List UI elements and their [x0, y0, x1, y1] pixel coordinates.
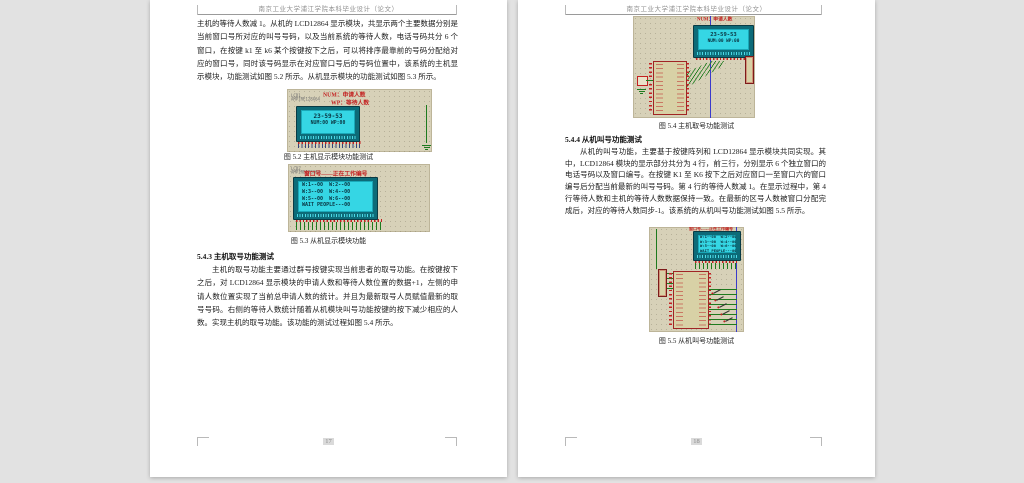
- figure-5-2-image[interactable]: LCD1AMPIRE128X64 NUM：申请人数 WP：等待人数 23-59-…: [287, 89, 432, 152]
- lcd-line-4: WAIT PEOPLE---00: [700, 249, 736, 253]
- wire-vertical: [426, 105, 427, 143]
- lcd-screen: W:1--00 W:2--00 W:3--00 W:4--00 W:5--00 …: [298, 181, 373, 212]
- figure-5-5-image[interactable]: 窗口号——正在工作编号 W:1--00 W:2--00 W:3--00 W:4-…: [649, 227, 744, 332]
- margin-crop-mark: [197, 5, 198, 15]
- ground-symbol: [422, 144, 431, 150]
- chip-pins-left: [669, 273, 672, 325]
- annotation-num: NUM：申请人数: [323, 92, 366, 98]
- header-rule: [197, 14, 457, 15]
- lcd-line-1: W:1--00 W:2--00: [302, 182, 373, 189]
- lcd-line-1: 23-59-53: [698, 31, 749, 39]
- lcd-screen: 23-59-53 NUM:00 WP:00: [698, 29, 749, 50]
- page-header-text: 南京工业大学浦江学院本科毕业设计（论文）: [150, 3, 507, 13]
- document-page-right[interactable]: 南京工业大学浦江学院本科毕业设计（论文） NUM：申请人数 23-59-53 N…: [518, 0, 875, 477]
- figure-5-2-caption[interactable]: 图 5.2 主机显示模块功能测试: [150, 152, 507, 162]
- lcd-module: 23-59-53 NUM:00 WP:00: [693, 25, 754, 58]
- document-page-left[interactable]: 南京工业大学浦江学院本科毕业设计（论文） 主机的等待人数减 1。从机的 LCD1…: [150, 0, 507, 477]
- lcd-screen: W:1--00 W:2--00 W:3--00 W:4--00 W:5--00 …: [698, 235, 736, 253]
- lcd-line-2: NUM:00 WP:00: [301, 121, 355, 127]
- margin-crop-mark: [565, 5, 566, 15]
- figure-5-3-caption[interactable]: 图 5.3 从机显示模块功能: [150, 236, 507, 246]
- lcd-line-2: NUM:00 WP:00: [698, 39, 749, 45]
- annotation-window: 窗口号——正在工作编号: [689, 227, 733, 231]
- ground-symbol: [637, 88, 646, 94]
- figure-5-5-caption[interactable]: 图 5.5 从机叫号功能测试: [518, 336, 875, 346]
- section-heading-5-4-4[interactable]: 5.4.4 从机叫号功能测试: [565, 134, 642, 145]
- lcd-connector-strip: [697, 255, 737, 258]
- lcd-model-label: AMPIRE128X64: [291, 97, 320, 102]
- figure-5-4-image[interactable]: NUM：申请人数 23-59-53 NUM:00 WP:00: [633, 16, 755, 118]
- lcd-connector-strip: [297, 214, 374, 217]
- lcd-module: 23-59-53 NUM:00 WP:00: [296, 106, 360, 142]
- body-paragraph-5-4-3[interactable]: 主机的取号功能主要通过群号按键实现当前患者的取号功能。在按键按下之后，对 LCD…: [197, 263, 458, 330]
- wire: [646, 80, 653, 81]
- mcu-chip: [673, 271, 709, 329]
- lcd-module: W:1--00 W:2--00 W:3--00 W:4--00 W:5--00 …: [693, 231, 741, 261]
- annotation-num: NUM：申请人数: [697, 17, 732, 22]
- page-number: 18: [518, 438, 875, 445]
- lcd-pin-wires: [298, 144, 362, 148]
- lcd-pin-wires: [695, 263, 737, 269]
- lcd-line-2: W:3--00 W:4--00: [302, 189, 373, 196]
- lcd-line-4: WAIT PEOPLE---00: [302, 202, 373, 209]
- body-paragraph-5-4-4[interactable]: 从机的叫号功能，主要基于按键阵列和 LCD12864 显示模块共同实现。其中，L…: [565, 146, 826, 216]
- margin-crop-mark: [821, 5, 822, 15]
- wire-vertical: [656, 229, 657, 269]
- figure-5-3-image[interactable]: LCD2AMPIRE128X64 窗口号——正在工作编号 W:1--00 W:2…: [288, 164, 430, 232]
- word-processor-canvas: { "window": { "background": "#e2e2e2", "…: [0, 0, 1024, 483]
- figure-5-4-caption[interactable]: 图 5.4 主机取号功能测试: [518, 121, 875, 131]
- lcd-connector-strip: [300, 136, 356, 139]
- lcd-line-3: W:5--00 W:6--00: [302, 196, 373, 203]
- header-rule: [565, 14, 822, 15]
- margin-crop-mark: [456, 5, 457, 15]
- body-paragraph-continuation[interactable]: 主机的等待人数减 1。从机的 LCD12864 显示模块，共显示两个主要数据分别…: [197, 17, 458, 84]
- annotation-window: 窗口号——正在工作编号: [304, 171, 367, 177]
- mcu-chip: [653, 61, 687, 115]
- annotation-wp: WP：等待人数: [331, 100, 369, 106]
- lcd-line-1: 23-59-53: [301, 112, 355, 121]
- lcd-screen: 23-59-53 NUM:00 WP:00: [301, 110, 355, 134]
- page-number: 17: [150, 438, 507, 445]
- connector: [745, 56, 754, 84]
- crystal-component: [637, 76, 648, 86]
- connector: [658, 269, 667, 297]
- lcd-connector-strip: [697, 52, 750, 55]
- section-heading-5-4-3[interactable]: 5.4.3 主机取号功能测试: [197, 251, 274, 262]
- chip-pins-left: [649, 63, 652, 111]
- lcd-module: W:1--00 W:2--00 W:3--00 W:4--00 W:5--00 …: [293, 177, 378, 220]
- lcd-pin-wires: [296, 222, 382, 230]
